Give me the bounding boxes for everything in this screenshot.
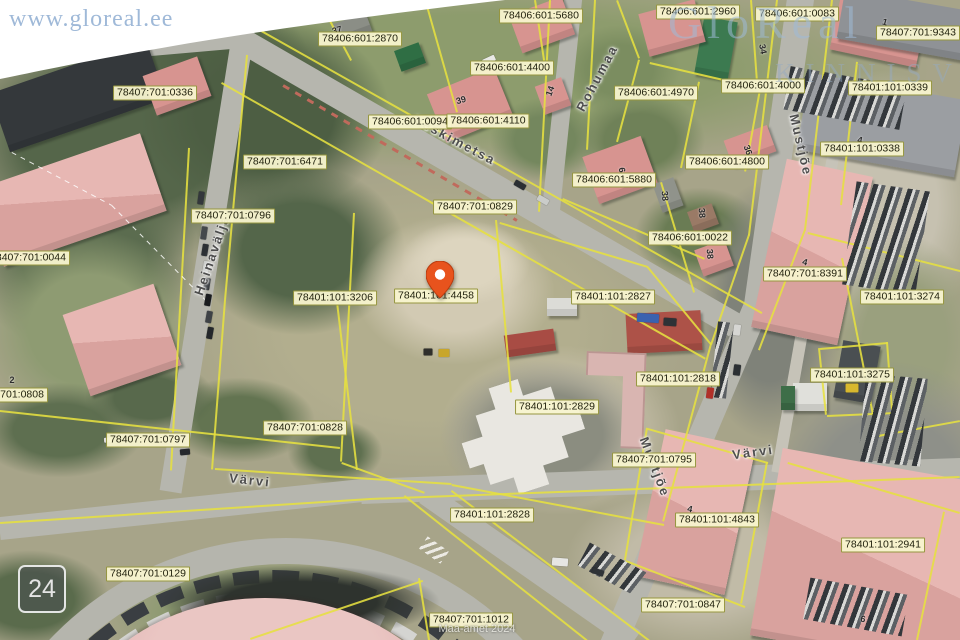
parcel-label: 78407:701:0336 xyxy=(113,86,197,101)
house-number: 2 xyxy=(9,375,14,385)
site-watermark: www.gloreal.ee xyxy=(9,6,173,33)
parcel-label: 78401:101:3275 xyxy=(810,368,894,383)
parcel-label: 78407:701:0044 xyxy=(0,251,70,266)
parcel-label: 78406:601:2870 xyxy=(318,32,402,47)
parcel-label: 78401:101:3274 xyxy=(860,290,944,305)
parcel-label: 78401:101:3206 xyxy=(293,291,377,306)
parcel-label: 78407:701:0797 xyxy=(106,433,190,448)
map-attribution: Maa-amet 2024 xyxy=(438,623,515,635)
parcel-label: 78407:701:0795 xyxy=(612,453,696,468)
car xyxy=(846,384,859,393)
car xyxy=(180,449,190,456)
parcel-label: 78407:701:0847 xyxy=(641,598,725,613)
map-canvas[interactable]: VeskimetsaRohumaaMustjõeMustjõeHeinavälj… xyxy=(0,0,960,640)
parcel-label: 78406:601:0022 xyxy=(648,231,732,246)
parcel-label: 78401:101:0338 xyxy=(820,142,904,157)
house-number: 38 xyxy=(705,249,716,260)
car xyxy=(439,349,450,357)
parked-cars-row xyxy=(858,373,927,466)
parcel-label: 78406:601:5880 xyxy=(572,173,656,188)
parcel-label: 78401:101:2827 xyxy=(571,290,655,305)
parcel-label: 78407:701:0829 xyxy=(433,200,517,215)
parked-cars-row xyxy=(842,181,930,294)
parcel-label: 78407:701:6471 xyxy=(243,155,327,170)
parcel-label: 78407:701:0828 xyxy=(263,421,347,436)
brand-watermark-subtitle: KINNISVARA xyxy=(775,58,960,89)
street-name-label: Värvi xyxy=(228,470,271,489)
parcel-label: 78407:701:9343 xyxy=(876,26,960,41)
parcel-label: 78401:101:2818 xyxy=(636,372,720,387)
brand-watermark: GloReal xyxy=(668,0,863,49)
parcel-label: 78406:601:4400 xyxy=(470,61,554,76)
parcel-label: 78406:601:4800 xyxy=(685,155,769,170)
parcel-label: 78401:101:2829 xyxy=(515,400,599,415)
parcel-label: 78407:701:8391 xyxy=(763,267,847,282)
location-pin-icon[interactable] xyxy=(426,261,454,303)
car xyxy=(637,313,660,324)
parcel-label: 78407:701:0808 xyxy=(0,388,48,403)
car xyxy=(663,318,677,327)
parcel-label: 78401:101:4843 xyxy=(675,513,759,528)
house-number: 38 xyxy=(660,191,671,202)
parcel-label: 78407:701:0796 xyxy=(191,209,275,224)
parcel-label: 78401:101:2941 xyxy=(841,538,925,553)
car xyxy=(424,349,433,356)
parcel-label: 78406:601:5680 xyxy=(499,9,583,24)
house-number: 38 xyxy=(697,208,708,219)
parcel-label: 78406:601:0094 xyxy=(368,115,452,130)
building xyxy=(781,386,795,410)
zoom-level-badge: 24 xyxy=(18,565,66,613)
parcel-label: 78406:601:4110 xyxy=(446,114,529,129)
car xyxy=(552,557,569,566)
parcel-label: 78407:701:0129 xyxy=(106,567,190,582)
parcel-label: 78401:101:2828 xyxy=(450,508,534,523)
parcel-label: 78406:601:4970 xyxy=(614,86,698,101)
